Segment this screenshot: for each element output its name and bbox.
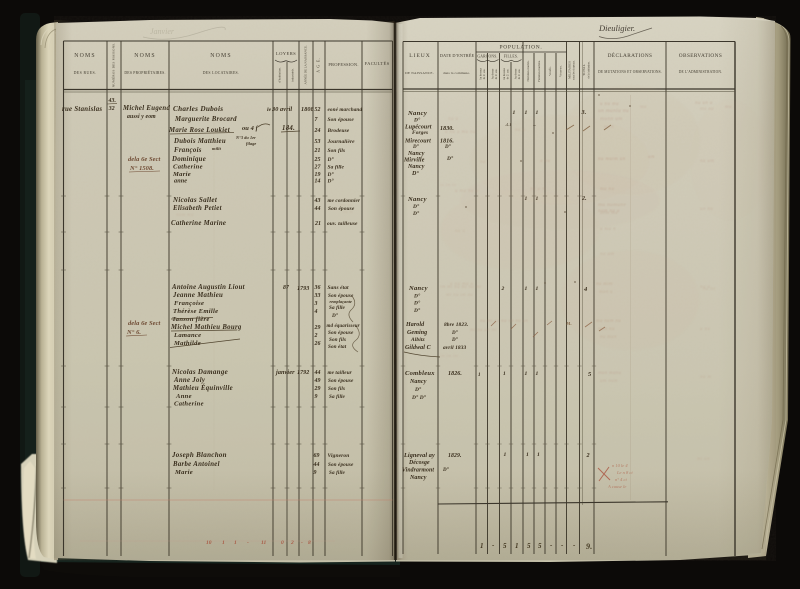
svg-text:FACULTÉS: FACULTÉS [365, 61, 390, 66]
svg-text:D°: D° [414, 386, 422, 393]
svg-text:52: 52 [315, 107, 321, 113]
svg-text:5: 5 [538, 542, 542, 550]
svg-text:FILLES.: FILLES. [504, 55, 518, 59]
svg-text:u mu n: u mu n [600, 227, 616, 232]
svg-text:Sa fille: Sa fille [329, 470, 346, 476]
svg-text:33: 33 [314, 293, 321, 299]
svg-text:Geming: Geming [407, 330, 427, 336]
svg-text:1: 1 [525, 371, 528, 377]
svg-text:0: 0 [281, 540, 284, 546]
svg-text:1808: 1808 [301, 106, 314, 113]
svg-text:1793: 1793 [297, 286, 309, 292]
svg-text:de la habitation.: de la habitation. [588, 61, 591, 79]
svg-text:nu muim un: nu muim un [598, 157, 626, 162]
svg-text:Son fils: Son fils [329, 337, 346, 343]
svg-text:Catherine: Catherine [174, 401, 204, 408]
svg-text:D°: D° [327, 156, 335, 163]
svg-text:mi nu im nu: mi nu im nu [446, 293, 473, 298]
svg-text:9.: 9. [586, 542, 593, 551]
svg-text:Sa fille: Sa fille [328, 165, 345, 171]
svg-text:mu nu: mu nu [600, 187, 614, 192]
svg-text:de 21 ans.: de 21 ans. [518, 68, 521, 79]
svg-text:Nancy: Nancy [407, 164, 425, 170]
svg-text:Femmes mariées.: Femmes mariées. [537, 60, 541, 82]
svg-text:D°: D° [411, 170, 419, 177]
svg-text:mu nu: mu nu [340, 202, 353, 207]
svg-text:D°: D° [327, 178, 335, 185]
svg-text:md équarisseur: md équarisseur [327, 324, 360, 329]
svg-text:GARÇONS.: GARÇONS. [477, 55, 497, 59]
svg-text:mun munu: mun munu [598, 371, 622, 376]
svg-text:Anne Joly: Anne Joly [173, 377, 206, 384]
svg-text:OBSERVATIONS: OBSERVATIONS [679, 53, 722, 59]
svg-text:Catherine: Catherine [173, 164, 203, 171]
svg-text:N° 1508.: N° 1508. [129, 165, 154, 172]
svg-text:Nicolas Sallet: Nicolas Sallet [172, 196, 218, 204]
svg-text:Nancy: Nancy [407, 151, 425, 157]
svg-text:Nancy: Nancy [409, 475, 427, 481]
svg-text:29: 29 [314, 325, 321, 331]
svg-text:Nancy: Nancy [407, 110, 427, 117]
svg-text:32: 32 [108, 106, 115, 112]
svg-text:43: 43 [314, 198, 321, 204]
svg-text:43.: 43. [108, 98, 117, 104]
svg-text:NUMÉROS DES MAISONS.: NUMÉROS DES MAISONS. [111, 43, 116, 88]
svg-text:D°: D° [444, 145, 451, 150]
svg-text:1826.: 1826. [448, 371, 462, 377]
svg-text:Nancy: Nancy [407, 196, 427, 203]
svg-text:D°: D° [446, 155, 454, 162]
svg-text:-: - [573, 541, 576, 549]
svg-text:nu m: nu m [343, 209, 354, 214]
svg-text:Ligneval ay: Ligneval ay [403, 452, 435, 459]
svg-text:u nu: u nu [540, 159, 550, 164]
svg-text:Janvier: Janvier [150, 27, 175, 36]
svg-text:1: 1 [515, 542, 519, 550]
svg-text:nu u: nu u [700, 285, 710, 290]
svg-text:Son épouse: Son épouse [328, 330, 354, 336]
svg-text:8: 8 [308, 540, 311, 546]
svg-text:u nu mu: u nu mu [600, 102, 619, 107]
svg-text:janvier: janvier [275, 369, 295, 376]
svg-text:dans la commune.: dans la commune. [443, 71, 470, 75]
svg-text:184.: 184. [282, 125, 295, 132]
svg-text:1816.: 1816. [440, 139, 454, 145]
svg-text:D°: D° [413, 117, 421, 124]
svg-text:Dubois Matthieu: Dubois Matthieu [173, 138, 226, 145]
svg-text:NOMS: NOMS [134, 53, 156, 59]
svg-text:36: 36 [314, 285, 321, 291]
svg-text:N° 6.: N° 6. [126, 329, 141, 336]
svg-text:ou 4 f: ou 4 f [242, 125, 259, 132]
svg-text:Son épouse: Son épouse [328, 378, 354, 384]
svg-text:9: 9 [315, 394, 318, 400]
svg-text:D°: D° [451, 331, 458, 336]
svg-text:DATE D’ENTRÉE: DATE D’ENTRÉE [440, 53, 475, 58]
svg-text:Son épouse: Son épouse [328, 117, 355, 123]
svg-text:Albitz: Albitz [410, 337, 426, 343]
svg-text:DES LOCATAIRES.: DES LOCATAIRES. [203, 71, 239, 75]
svg-text:François: François [174, 147, 202, 154]
svg-text:LOYERS: LOYERS [276, 51, 296, 56]
svg-text:D°: D° [413, 293, 421, 300]
svg-text:Nicolas Damange: Nicolas Damange [171, 368, 228, 376]
svg-text:u nu u mu nu: u nu u mu nu [445, 130, 476, 135]
svg-text:D°: D° [451, 338, 458, 343]
svg-text:Jeanne Mathieu: Jeanne Mathieu [172, 292, 223, 299]
svg-text:dela 6e Sect: dela 6e Sect [128, 156, 161, 163]
svg-text:19: 19 [315, 172, 321, 178]
svg-text:5: 5 [588, 371, 592, 378]
svg-text:49: 49 [314, 378, 321, 384]
svg-text:Veufs.: Veufs. [548, 66, 552, 76]
svg-text:filage: filage [246, 141, 256, 146]
svg-text:69: 69 [314, 453, 320, 459]
svg-text:D°: D° [331, 312, 339, 319]
svg-text:87: 87 [283, 285, 290, 291]
svg-text:1: 1 [536, 371, 539, 377]
svg-text:NOMS: NOMS [74, 53, 96, 59]
svg-text:Sa fille: Sa fille [329, 394, 346, 400]
svg-text:Hommes mariés.: Hommes mariés. [526, 60, 530, 81]
svg-text:Françoise: Françoise [174, 300, 204, 307]
svg-text:Nancy: Nancy [409, 379, 427, 385]
svg-text:1: 1 [503, 371, 506, 377]
svg-text:Gildwal C: Gildwal C [405, 345, 432, 351]
svg-text:1: 1 [480, 542, 484, 550]
svg-text:nu u m: nu u m [530, 187, 546, 192]
svg-text:nu um: nu um [700, 159, 714, 164]
svg-text:21: 21 [314, 148, 321, 154]
svg-text:Mathilde: Mathilde [173, 340, 201, 347]
svg-text:sous les drapeaux.: sous les drapeaux. [573, 60, 576, 80]
svg-text:mu: mu [725, 105, 732, 110]
svg-text:Michel Eugend: Michel Eugend [122, 105, 170, 112]
svg-text:-: - [301, 540, 303, 546]
svg-text:mi nu un mi: mi nu un mi [470, 328, 497, 333]
svg-text:Nancy: Nancy [408, 285, 428, 292]
svg-text:in im in: in im in [440, 182, 457, 187]
svg-text:D°: D° [412, 203, 420, 210]
svg-text:Mirville: Mirville [403, 158, 425, 164]
svg-text:D°: D° [413, 300, 421, 307]
svg-text:industriels.: industriels. [291, 68, 295, 81]
svg-text:D°: D° [413, 307, 421, 314]
svg-text:u nu: u nu [700, 327, 710, 332]
svg-text:mu num: mu num [172, 205, 190, 210]
svg-text:ANNÉE DE LA NAISSANCE.: ANNÉE DE LA NAISSANCE. [303, 45, 308, 84]
svg-text:remplaçante: remplaçante [330, 299, 353, 304]
svg-text:29: 29 [314, 386, 321, 392]
svg-text:Catherine Marine: Catherine Marine [171, 220, 226, 227]
svg-text:1792: 1792 [297, 370, 309, 376]
svg-text:Anne: Anne [175, 393, 192, 400]
svg-text:im im im: im im im [440, 353, 459, 358]
svg-text:25: 25 [314, 157, 321, 163]
svg-text:aussi y eom: aussi y eom [127, 114, 156, 120]
svg-text:D°: D° [327, 171, 335, 178]
svg-text:le: le [267, 107, 272, 113]
svg-text:1: 1 [525, 110, 528, 116]
svg-text:5: 5 [527, 542, 531, 550]
svg-text:DE L’ADMINISTRATION.: DE L’ADMINISTRATION. [679, 70, 722, 74]
svg-text:5: 5 [503, 542, 507, 550]
svg-text:Veuves.: Veuves. [559, 65, 563, 77]
svg-text:de 21 ans.: de 21 ans. [495, 68, 498, 79]
svg-text:TOTAL: TOTAL [582, 64, 586, 76]
svg-text:Marie: Marie [174, 469, 193, 476]
svg-text:1: 1 [536, 110, 539, 116]
svg-text:Charles Dubois: Charles Dubois [173, 105, 223, 113]
svg-text:eoné marchand: eoné marchand [328, 107, 363, 113]
svg-text:de 21 ans.: de 21 ans. [483, 68, 486, 79]
svg-text:LIEUX: LIEUX [409, 53, 431, 59]
svg-text:Dominique: Dominique [171, 156, 206, 163]
svg-text:um num: um num [600, 379, 618, 384]
svg-text:Sa fille: Sa fille [329, 305, 346, 311]
svg-text:4: 4 [314, 309, 318, 315]
svg-text:2: 2 [501, 286, 505, 292]
svg-text:Antoine Augustin Liout: Antoine Augustin Liout [171, 284, 246, 291]
svg-text:n° 4 ci: n° 4 ci [615, 477, 628, 482]
svg-text:8bre 1823.: 8bre 1823. [444, 322, 468, 328]
svg-text:1: 1 [526, 452, 529, 458]
svg-text:NOMS: NOMS [210, 53, 232, 59]
svg-text:1: 1 [537, 452, 540, 458]
svg-text:Son épouse: Son épouse [328, 462, 354, 468]
svg-text:53: 53 [315, 139, 321, 145]
svg-text:milit: milit [212, 146, 222, 151]
svg-text:nu m: nu m [700, 375, 711, 380]
svg-text:num nu u: num nu u [598, 209, 620, 214]
svg-text:avril 1833: avril 1833 [443, 345, 467, 351]
svg-text:Thérèse Emille: Thérèse Emille [173, 308, 218, 315]
svg-text:POPULATION.: POPULATION. [500, 45, 543, 51]
svg-text:nu un u: nu un u [695, 101, 713, 106]
svg-text:Barbe Antoinel: Barbe Antoinel [172, 461, 220, 468]
svg-text:anne: anne [174, 178, 187, 185]
svg-text:ouv. tailleuse: ouv. tailleuse [327, 221, 358, 227]
svg-text:24: 24 [314, 128, 321, 134]
svg-text:D° D°: D° D° [411, 394, 427, 401]
svg-text:Vigneron: Vigneron [328, 453, 350, 459]
svg-text:1: 1 [536, 286, 539, 292]
svg-text:1: 1 [504, 452, 507, 458]
svg-text:14: 14 [315, 179, 321, 185]
svg-text:nu u: nu u [515, 128, 525, 133]
svg-text:1: 1 [478, 373, 481, 378]
svg-text:N°3 du 1er: N°3 du 1er [235, 135, 256, 140]
svg-text:44: 44 [314, 206, 321, 212]
svg-text:9: 9 [314, 470, 317, 476]
svg-text:de 21 ans.: de 21 ans. [506, 68, 509, 79]
svg-text:un nu: un nu [700, 207, 713, 212]
svg-text:Lamance: Lamance [173, 332, 201, 339]
svg-text:um: um [648, 155, 655, 160]
svg-text:DES PROPRIÉTAIRES.: DES PROPRIÉTAIRES. [124, 70, 165, 75]
svg-text:mi un: mi un [697, 457, 710, 462]
svg-text:num mu: num mu [176, 213, 194, 218]
svg-text:nu u: nu u [455, 229, 465, 234]
svg-text:D°: D° [442, 468, 449, 473]
svg-text:Tanson fière: Tanson fière [172, 316, 210, 323]
svg-text:10: 10 [206, 540, 212, 546]
svg-text:nu um: nu um [600, 252, 614, 257]
svg-text:me tailleur: me tailleur [328, 370, 353, 376]
svg-text:A cause le: A cause le [607, 484, 626, 489]
svg-text:D°: D° [412, 210, 420, 217]
svg-text:1: 1 [222, 540, 225, 546]
svg-text:DES RUES.: DES RUES. [74, 71, 97, 75]
svg-text:-: - [550, 541, 553, 549]
svg-text:Joseph Blanchon: Joseph Blanchon [171, 451, 227, 459]
svg-text:u nu mu u: u nu mu u [450, 282, 474, 287]
svg-text:27: 27 [314, 165, 322, 171]
svg-text:nu: nu [480, 160, 486, 165]
svg-text:2: 2 [314, 333, 318, 339]
svg-text:Harold: Harold [405, 322, 425, 328]
svg-text:nu mi ça nu im nu un: nu mi ça nu im nu un [480, 319, 528, 324]
svg-text:-: - [492, 541, 495, 549]
svg-text:Vindrarmont: Vindrarmont [402, 468, 434, 474]
svg-text:1: 1 [234, 540, 237, 546]
svg-text:Combleux: Combleux [405, 370, 435, 377]
svg-text:Le n 8 ci: Le n 8 ci [616, 470, 633, 475]
svg-text:Brodeuse: Brodeuse [327, 128, 350, 134]
svg-text:d’habitation.: d’habitation. [278, 67, 282, 82]
svg-text:nu u: nu u [448, 117, 458, 122]
svg-text:Décosge: Décosge [408, 460, 430, 466]
svg-text:26: 26 [314, 341, 321, 347]
svg-text:Forges: Forges [412, 130, 428, 136]
svg-text:Sans état: Sans état [328, 285, 350, 291]
svg-text:-: - [247, 540, 249, 546]
svg-text:DE MUTATIONS ET OBSERVATIONS.: DE MUTATIONS ET OBSERVATIONS. [598, 70, 662, 74]
svg-text:DE NAISSANCE.: DE NAISSANCE. [405, 71, 434, 75]
svg-text:u mu nu u: u mu nu u [455, 189, 479, 194]
svg-text:1: 1 [513, 110, 516, 116]
svg-text:2: 2 [290, 540, 294, 546]
svg-text:44: 44 [313, 462, 320, 468]
svg-text:D°: D° [412, 145, 419, 150]
svg-text:Son fils: Son fils [328, 386, 345, 392]
svg-text:PROFESSION.: PROFESSION. [328, 62, 358, 67]
svg-text:21: 21 [314, 221, 321, 227]
svg-text:Mathieu Équinville: Mathieu Équinville [172, 384, 233, 392]
svg-text:Mirecourt: Mirecourt [404, 139, 431, 145]
svg-text:Son fils: Son fils [328, 148, 346, 154]
svg-text:-: - [561, 541, 564, 549]
svg-text:1: 1 [525, 286, 528, 292]
svg-text:A G E.: A G E. [316, 57, 321, 73]
svg-text:n 10 le 4: n 10 le 4 [612, 463, 628, 468]
svg-text:3: 3 [314, 301, 318, 307]
svg-text:2: 2 [586, 452, 590, 459]
svg-text:1829.: 1829. [448, 453, 462, 459]
svg-text:Marguerite Brocard: Marguerite Brocard [174, 116, 237, 123]
svg-text:DÉCLARATIONS: DÉCLARATIONS [608, 51, 653, 59]
svg-text:30 avril: 30 avril [271, 106, 292, 113]
svg-text:11: 11 [261, 540, 266, 546]
svg-text:Dieuligier.: Dieuligier. [598, 23, 635, 33]
svg-text:Journalière: Journalière [327, 139, 356, 145]
svg-text:rue Stanislas: rue Stanislas [62, 106, 102, 113]
svg-text:MILITAIRES: MILITAIRES [567, 61, 571, 79]
svg-text:dela 6e Sect: dela 6e Sect [128, 320, 161, 327]
svg-text:Son état: Son état [328, 344, 347, 350]
svg-text:44: 44 [314, 370, 321, 376]
